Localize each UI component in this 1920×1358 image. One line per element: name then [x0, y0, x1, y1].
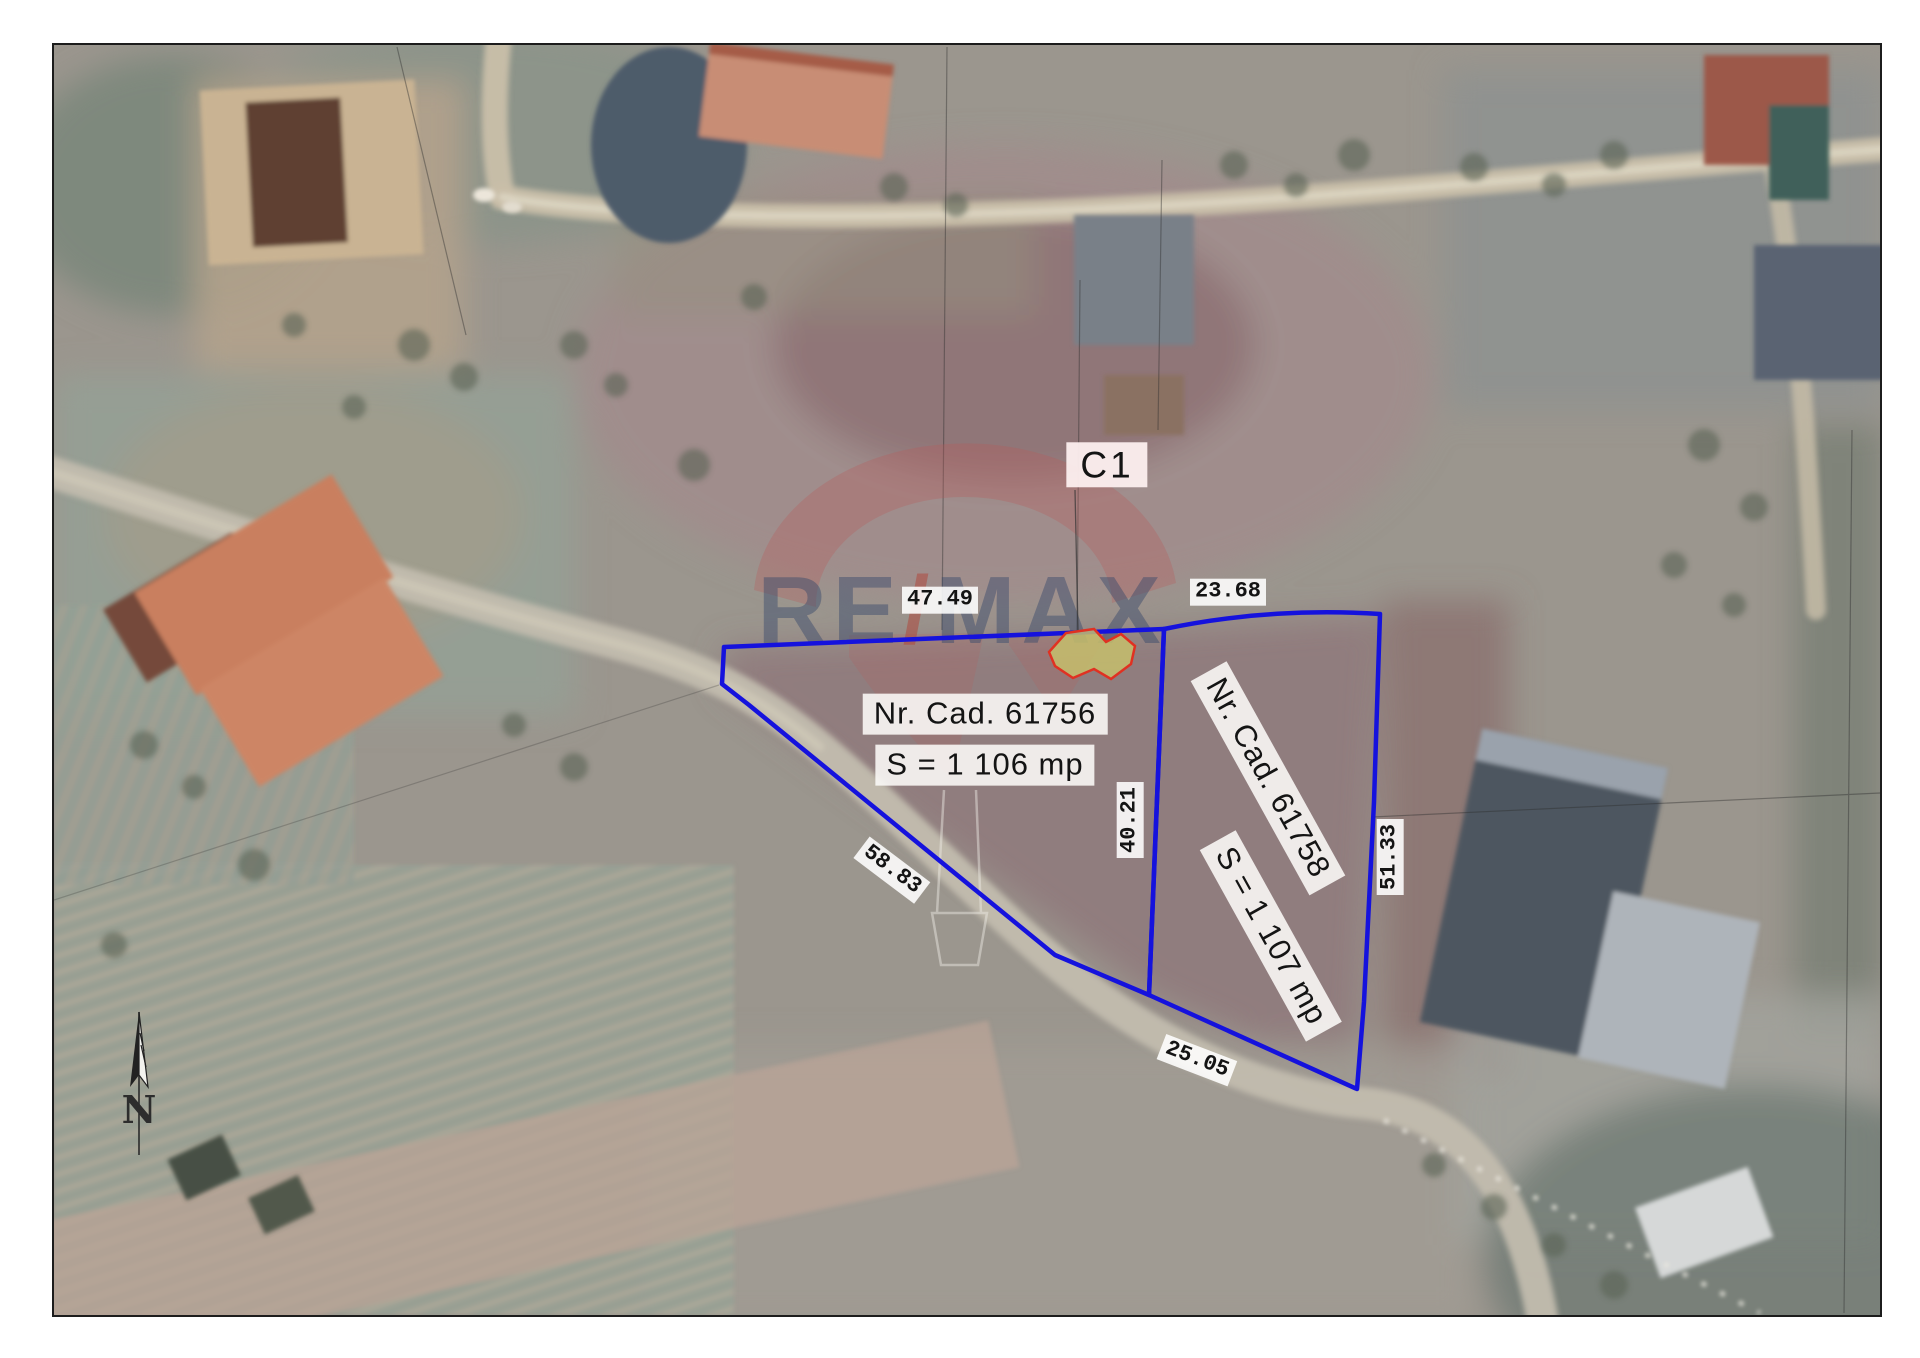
dimension-divider: 40.21: [1117, 782, 1144, 858]
map-frame: RE/MAX N: [52, 43, 1882, 1317]
dimension-top-plot1: 47.49: [902, 587, 978, 614]
plot1-cadastral-number: Nr. Cad. 61756: [863, 694, 1108, 735]
c1-building-label: C1: [1066, 442, 1147, 487]
north-label: N: [122, 1087, 157, 1132]
cadastral-map-page: RE/MAX N 47.49 23.68 58.83 40.21 51.33 2…: [0, 0, 1920, 1358]
plot1-area: S = 1 106 mp: [875, 745, 1094, 786]
aerial-imagery: RE/MAX N: [54, 45, 1880, 1315]
dimension-top-plot2: 23.68: [1190, 579, 1266, 606]
dimension-east-edge: 51.33: [1377, 819, 1404, 895]
watermark-re: RE: [757, 557, 902, 664]
